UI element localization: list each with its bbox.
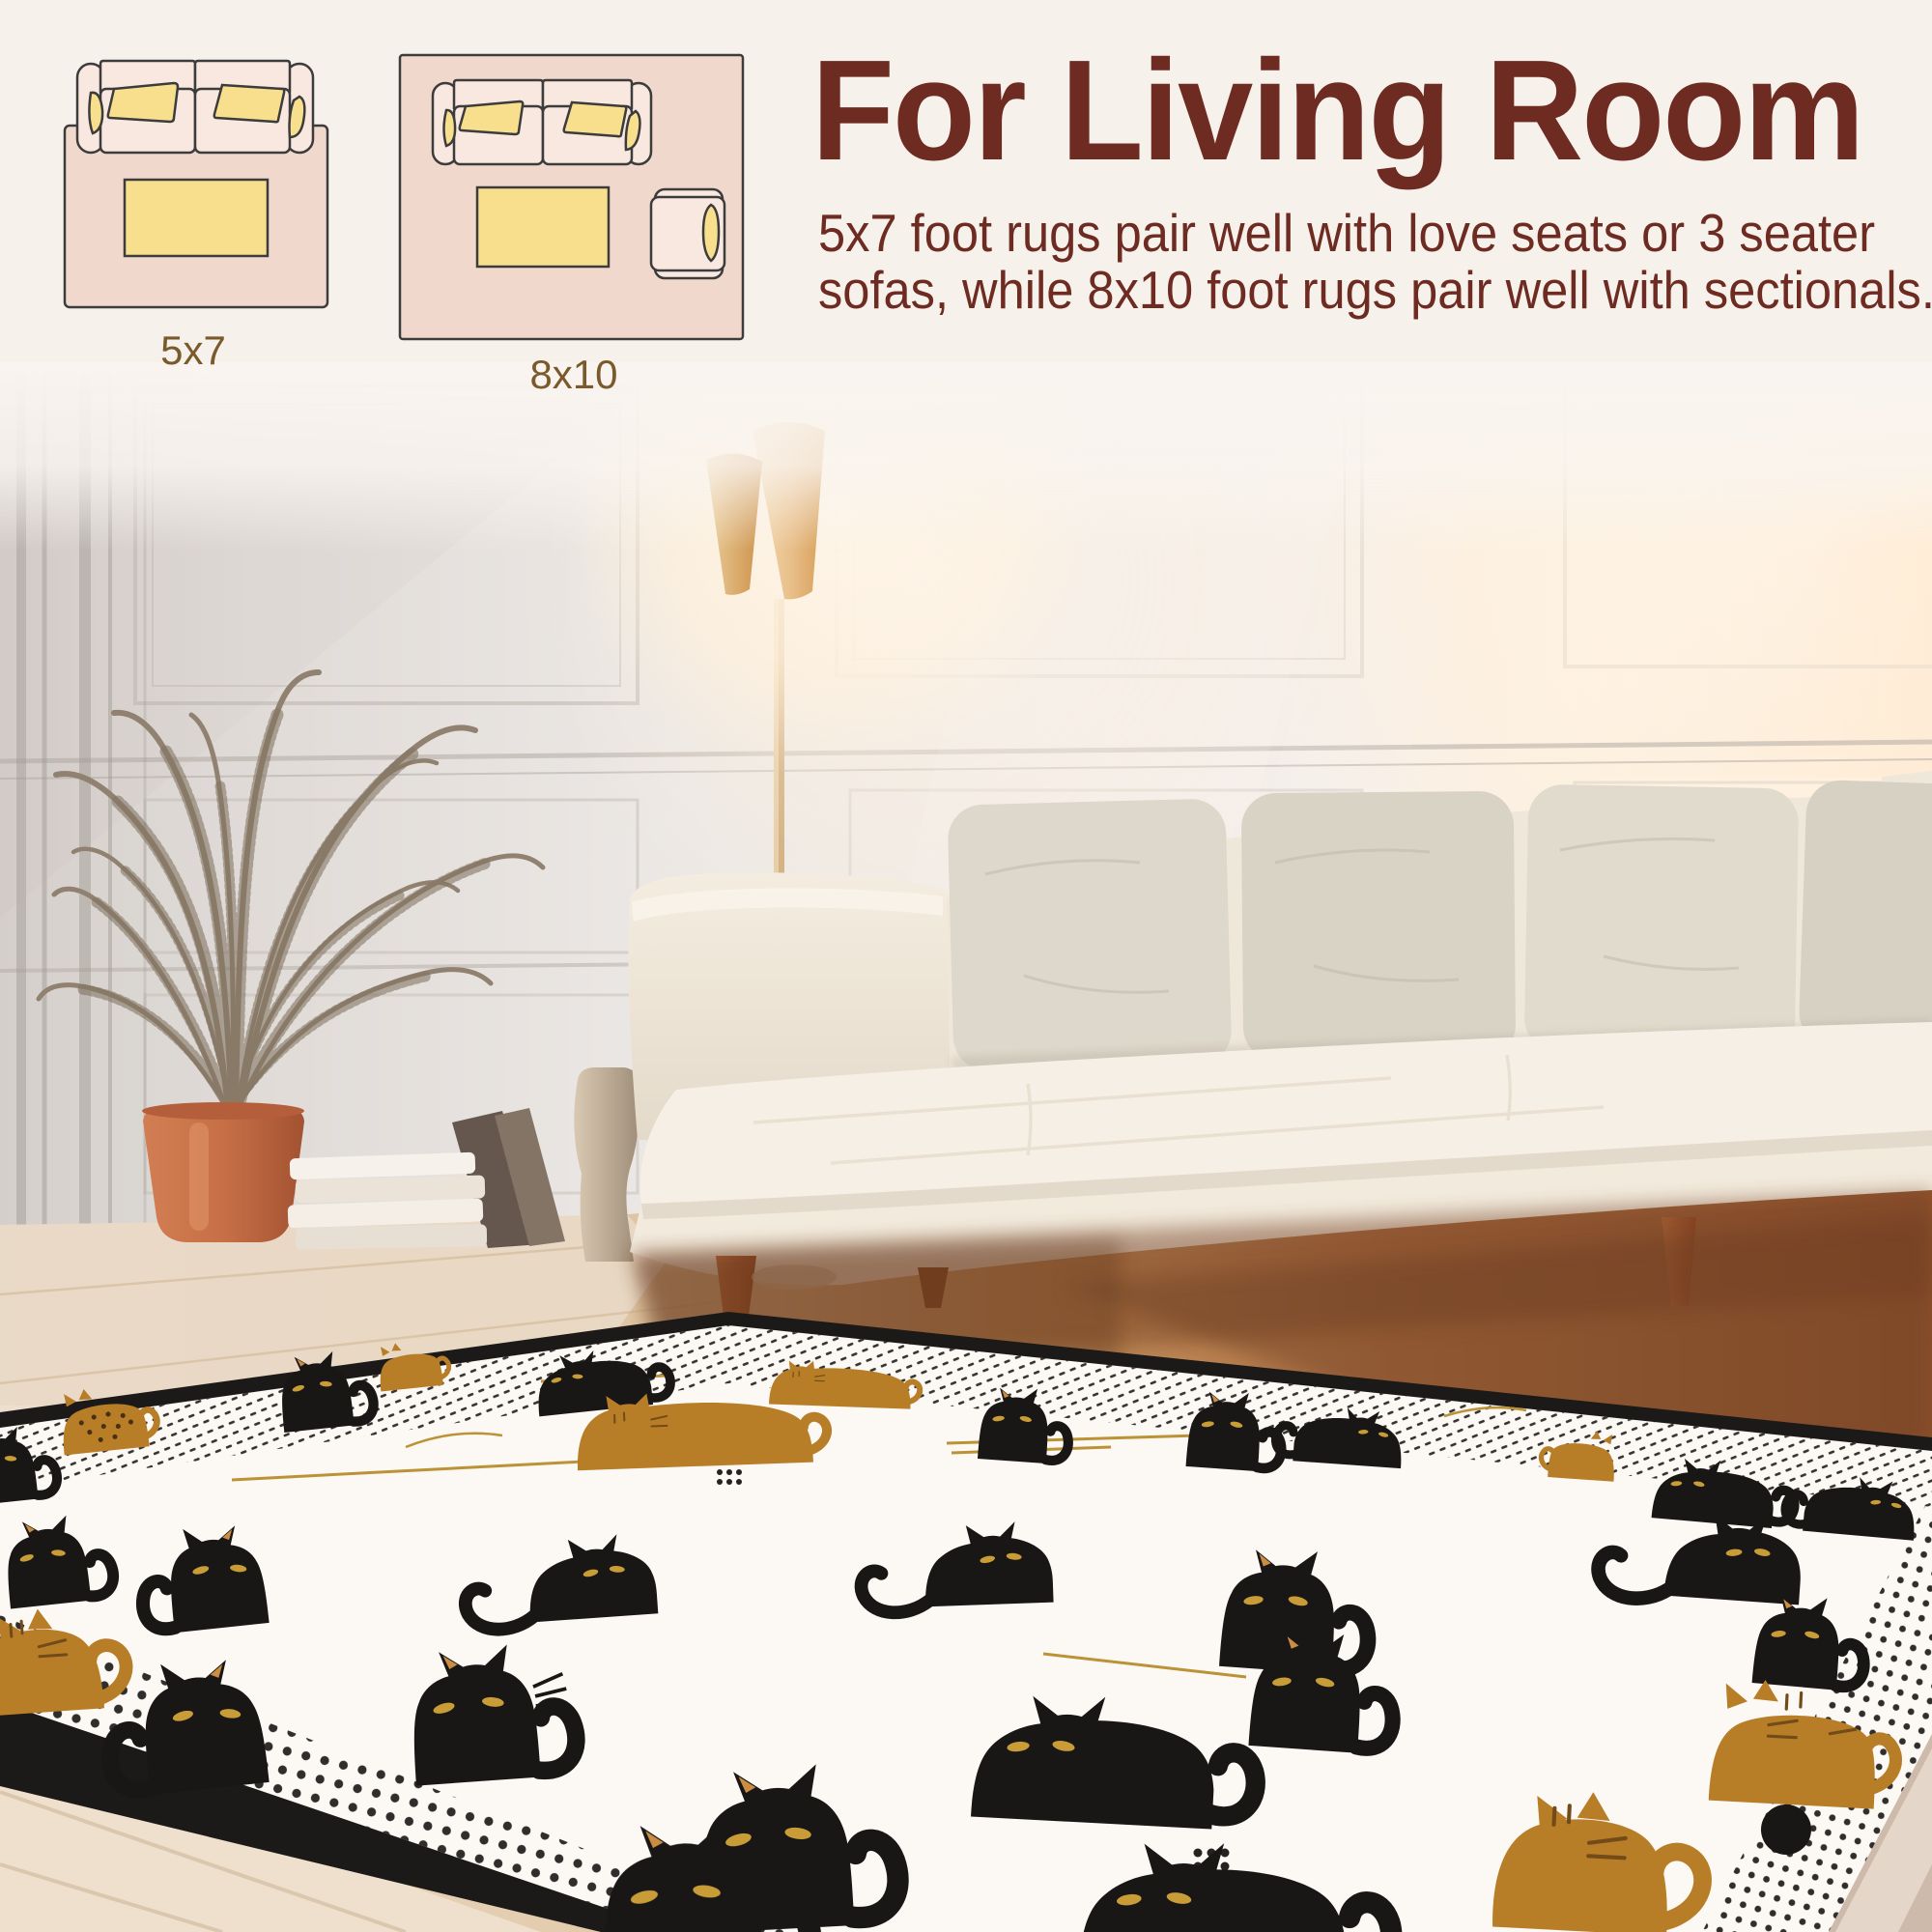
svg-text:8x10: 8x10 — [529, 352, 617, 397]
svg-text:5x7: 5x7 — [160, 327, 226, 373]
